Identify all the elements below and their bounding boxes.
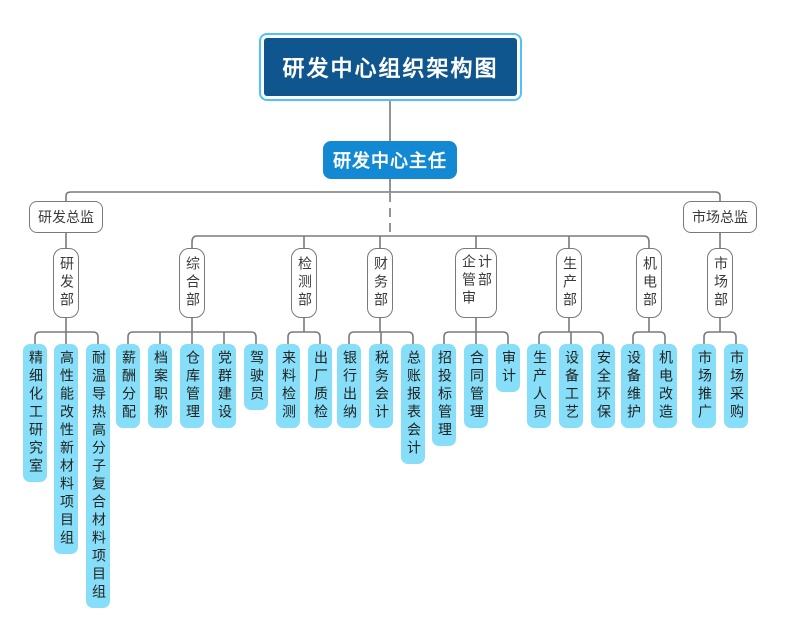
org-chart: 研发中心组织架构图 研发中心主任 研发总监 市场总监 研发部 综合部 检测部 财… <box>0 0 795 641</box>
team-node: 审计 <box>496 344 520 392</box>
dept-node-marketing: 市场部 <box>707 248 733 318</box>
director-node: 研发中心主任 <box>323 141 457 179</box>
team-node: 耐温导热高分子复合材料项目组 <box>86 344 110 608</box>
team-node: 高性能改性新材料项目组 <box>54 344 78 554</box>
team-node: 税务会计 <box>369 344 393 428</box>
team-node: 党群建设 <box>212 344 236 428</box>
dept-node-production: 生产部 <box>556 248 582 318</box>
dept-node-rnd: 研发部 <box>53 248 79 318</box>
team-node: 市场采购 <box>724 344 748 428</box>
team-node: 档案职称 <box>148 344 172 428</box>
team-node: 出厂质检 <box>308 344 332 428</box>
chart-title-node: 研发中心组织架构图 <box>259 33 522 101</box>
team-node: 安全环保 <box>591 344 615 428</box>
team-node: 总账报表会计 <box>401 344 425 464</box>
team-node: 仓库管理 <box>180 344 204 428</box>
team-node: 设备工艺 <box>559 344 583 428</box>
dept-node-audit: 企管审计部 <box>455 248 497 318</box>
team-node: 招投标管理 <box>432 344 456 446</box>
team-node: 驾驶员 <box>244 344 268 410</box>
head-node-rnd-director: 研发总监 <box>29 201 103 233</box>
team-node: 来料检测 <box>276 344 300 428</box>
team-node: 精细化工研究室 <box>23 344 47 482</box>
dept-node-inspection: 检测部 <box>291 248 317 318</box>
team-node: 市场推广 <box>692 344 716 428</box>
dept-node-finance: 财务部 <box>367 248 393 318</box>
team-node: 薪酬分配 <box>116 344 140 428</box>
head-node-market-director: 市场总监 <box>683 201 757 233</box>
team-node: 银行出纳 <box>337 344 361 428</box>
team-node: 机电改造 <box>653 344 677 428</box>
team-node: 合同管理 <box>464 344 488 428</box>
dept-node-general: 综合部 <box>179 248 205 318</box>
team-node: 生产人员 <box>527 344 551 428</box>
chart-title-text: 研发中心组织架构图 <box>264 38 517 96</box>
team-node: 设备维护 <box>621 344 645 428</box>
dept-node-mechatronics: 机电部 <box>636 248 662 318</box>
